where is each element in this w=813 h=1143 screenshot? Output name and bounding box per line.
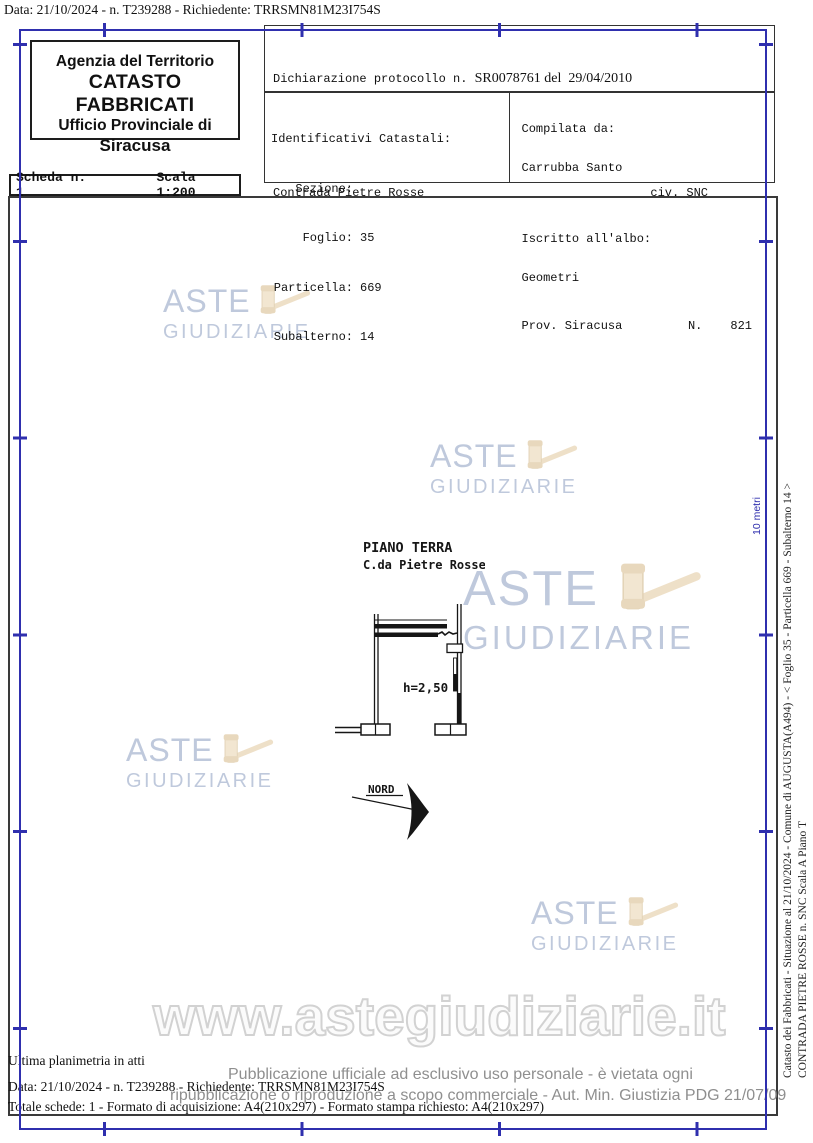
plan-subtitle: C.da Pietre Rosse xyxy=(363,558,485,572)
legal-notice-line1: Pubblicazione ufficiale ad esclusivo uso… xyxy=(228,1066,693,1084)
scan-frame-bottom-ticks xyxy=(19,1122,767,1136)
north-label: NORD xyxy=(368,783,395,796)
compiled-by-name: Carrubba Santo xyxy=(522,162,775,175)
sezione-label: Sezione: xyxy=(271,181,353,198)
register-label: Iscritto all'albo: xyxy=(522,233,775,246)
agency-name: Agenzia del Territorio xyxy=(32,53,238,71)
scale-value: Scala 1:200 xyxy=(157,170,240,200)
north-arrowhead xyxy=(407,783,429,840)
floor-plan-drawing: PIANO TERRA C.da Pietre Rosse h=2,50 NOR… xyxy=(325,533,485,863)
cadastral-identifiers-box: Identificativi Catastali: Sezione: Fogli… xyxy=(264,92,510,183)
room-height-label: h=2,50 xyxy=(403,680,448,695)
declaration-protocol-row: Dichiarazione protocollo n. SR0078761 de… xyxy=(273,69,766,89)
side-address-reference: CONTRADA PIETRE ROSSE n. SNC Scala A Pia… xyxy=(796,855,811,1078)
agency-header-box: Agenzia del Territorio CATASTO FABBRICAT… xyxy=(30,40,240,140)
province-name: Siracusa xyxy=(32,136,238,156)
scan-frame-left-ticks xyxy=(13,30,27,1130)
particella-label: Particella: xyxy=(271,280,353,297)
particella-value: 669 xyxy=(360,280,382,297)
identifier-row-sezione: Sezione: xyxy=(271,181,509,198)
protocol-label: Dichiarazione protocollo n. xyxy=(273,72,475,86)
sheet-scale-box: Scheda n. 1 Scala 1:200 xyxy=(9,174,241,196)
identifiers-title: Identificativi Catastali: xyxy=(271,131,509,148)
compiler-box: Compilata da: Carrubba Santo Iscritto al… xyxy=(509,92,776,183)
plan-title: PIANO TERRA xyxy=(363,540,452,556)
scan-frame-top-ticks xyxy=(19,23,767,37)
register-number-value: 821 xyxy=(730,320,752,333)
compiled-by-label: Compilata da: xyxy=(522,123,775,136)
scan-frame-right-ticks xyxy=(759,30,773,1130)
register-number-label: N. xyxy=(688,320,702,333)
scale-ruler-label: 10 metri xyxy=(751,483,764,535)
protocol-number: SR0078761 del 29/04/2010 xyxy=(475,71,633,86)
provincial-office-label: Ufficio Provinciale di xyxy=(32,117,238,135)
foglio-label: Foglio: xyxy=(271,230,353,247)
identifier-row-subalterno: Subalterno: 14 xyxy=(271,329,509,346)
foglio-value: 35 xyxy=(360,230,374,247)
register-value: Geometri xyxy=(522,272,775,285)
compiler-province: Prov. Siracusa xyxy=(522,320,623,333)
cadastral-document-page: Data: 21/10/2024 - n. T239288 - Richiede… xyxy=(0,0,813,1143)
catasto-fabbricati-title: CATASTO FABBRICATI xyxy=(32,71,238,117)
request-header-line: Data: 21/10/2024 - n. T239288 - Richiede… xyxy=(4,2,381,18)
identifier-row-foglio: Foglio: 35 xyxy=(271,230,509,247)
sheet-number: Scheda n. 1 xyxy=(16,170,99,200)
last-plan-note: Ultima planimetria in atti xyxy=(8,1053,145,1069)
identifier-row-particella: Particella: 669 xyxy=(271,280,509,297)
subalterno-value: 14 xyxy=(360,329,374,346)
subalterno-label: Subalterno: xyxy=(271,329,353,346)
legal-notice-line2: ripubblicazione o riproduzione a scopo c… xyxy=(170,1087,786,1105)
side-cadastral-reference: Catasto dei Fabbricati - Situazione al 2… xyxy=(781,478,796,1078)
province-row: Prov. Siracusa N. 821 xyxy=(522,320,775,333)
